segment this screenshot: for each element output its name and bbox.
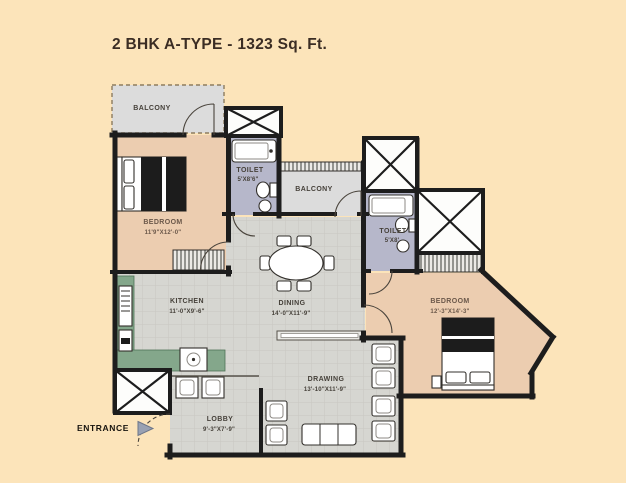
sofa-icon — [302, 424, 356, 445]
kitchen-appliance-door — [121, 338, 130, 344]
room-label-toilet-top: TOILET — [236, 167, 263, 174]
side-table-icon — [432, 376, 441, 388]
room-dims-toilet-right: 5'X8' — [385, 238, 400, 244]
room-label-lobby: LOBBY — [207, 416, 234, 423]
window-strip — [419, 253, 482, 272]
room-dims-drawing: 13'-10"X11'-9" — [304, 387, 346, 393]
entrance-marker: ENTRANCE — [77, 422, 153, 436]
room-label-bedroom-right: BEDROOM — [430, 298, 469, 305]
room-label-balcony-mid: BALCONY — [295, 186, 332, 193]
room-label-toilet-right: TOILET — [379, 228, 406, 235]
bed-icon — [116, 157, 186, 211]
room-label-bedroom-left: BEDROOM — [143, 219, 182, 226]
room-dims-dining: 14'-0"X11'-9" — [272, 311, 311, 317]
room-dims-bedroom-right: 12'-3"X14'-3" — [430, 309, 469, 315]
room-label-kitchen: KITCHEN — [170, 298, 204, 305]
entrance-label: ENTRANCE — [77, 423, 129, 433]
console-unit-icon — [277, 331, 362, 340]
washbasin-icon — [259, 200, 271, 212]
floor-plan-drawing: 2 BHK A-TYPE - 1323 Sq. Ft. BALCONY BEDR… — [0, 0, 626, 483]
room-dims-bedroom-left: 11'9"X12'-0" — [145, 230, 182, 236]
wardrobe-icon — [173, 250, 224, 270]
entrance-arrow-icon — [138, 422, 153, 436]
duct-shaft-icon — [226, 108, 281, 136]
window-strip — [281, 162, 363, 171]
kitchen-dining-floor — [117, 273, 365, 339]
page-title: 2 BHK A-TYPE - 1323 Sq. Ft. — [112, 36, 327, 53]
floor-plan-page: 2 BHK A-TYPE - 1323 Sq. Ft. BALCONY BEDR… — [0, 0, 626, 483]
duct-shaft-icon — [417, 190, 483, 253]
room-label-drawing: DRAWING — [308, 376, 345, 383]
duct-shaft-icon — [364, 138, 417, 191]
room-dims-kitchen: 11'-0"X9'-6" — [169, 309, 204, 315]
room-dims-lobby: 9'-3"X7'-9" — [203, 427, 235, 433]
room-label-dining: DINING — [279, 300, 306, 307]
duct-shaft-icon — [115, 370, 170, 413]
room-label-balcony-top: BALCONY — [133, 105, 170, 112]
wc-icon — [257, 182, 270, 198]
wc-tank — [270, 183, 277, 197]
room-dims-toilet-top: 5'X8'6" — [237, 177, 258, 183]
